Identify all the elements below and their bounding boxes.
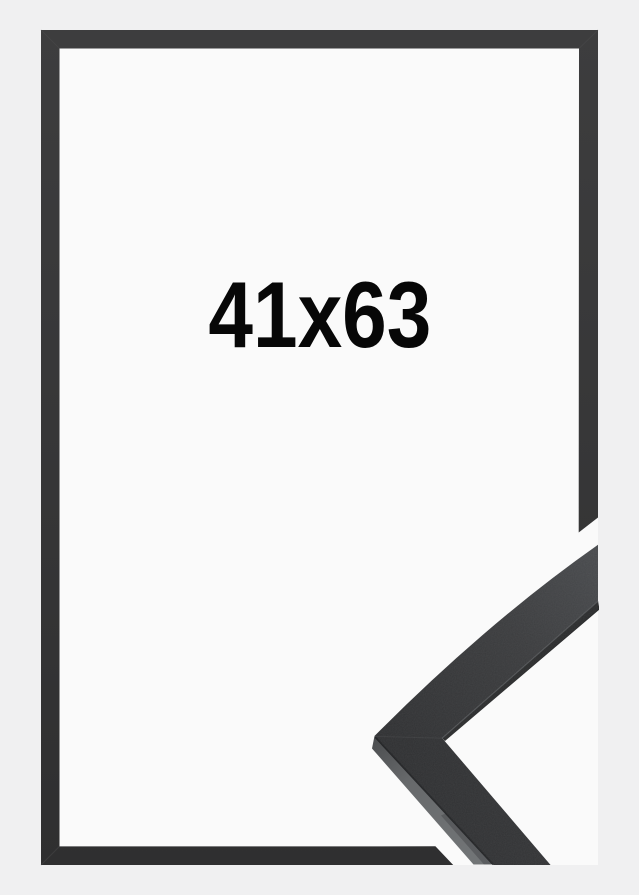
svg-text:41x63: 41x63	[208, 263, 431, 367]
